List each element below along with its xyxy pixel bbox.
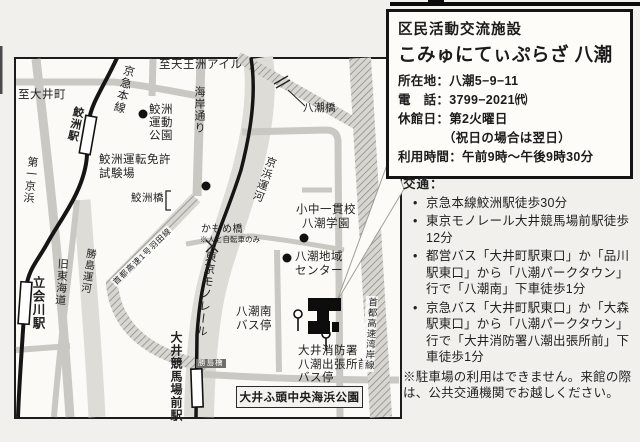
access-list: 京急本線鮫洲駅徒歩30分 東京モノレール大井競馬場前駅徒歩12分 都営バス「大井… <box>403 195 638 366</box>
map-label-kaigan-dori: 海岸通り <box>193 86 204 134</box>
bus-stop-icon-yashio-minami <box>294 310 302 318</box>
map-label-kyu-tokaido: 旧東海道 <box>53 258 67 307</box>
map-label-samezu-bridge: 鮫洲橋 <box>131 192 164 204</box>
map-label-kamome-bridge: かもめ橋 <box>201 224 243 236</box>
access-section: 交通： 京急本線鮫洲駅徒歩30分 東京モノレール大井競馬場前駅徒歩12分 都営バ… <box>403 176 638 402</box>
access-heading: 交通： <box>403 176 638 193</box>
map-label-oi-keibajo-station: 大井競馬場前駅 <box>170 331 182 422</box>
map-label-to-oimachi: 至大井町 <box>18 89 66 102</box>
scanned-map-page: { "info_box": { "category": "区民活動交流施設", … <box>0 0 640 442</box>
scan-edge-left <box>0 46 3 94</box>
facility-closed-day-note-row: （祝日の場合は翌日） <box>398 129 620 148</box>
map-label-to-tennozu: 至天王洲アイル <box>159 59 242 72</box>
map-label-tachiaigawa-station: 立会川駅 <box>31 276 44 330</box>
facility-closed-day-row: 休館日：第2火曜日 <box>398 110 620 129</box>
poi-dot-license-center <box>202 182 211 191</box>
facility-phone-row: 電 話：3799−2021㈹ <box>398 91 620 110</box>
map-label-yashio-bridge: 八潮橋 <box>303 102 336 114</box>
map-label-school: 小中一貫校 八潮学園 <box>296 203 356 231</box>
map-label-yashio-minami-bus-stop: 八潮南 バス停 <box>236 306 272 333</box>
map-label-license-center: 鮫洲運転免許 試験場 <box>99 153 171 181</box>
access-item-toei-bus: 都営バス「大井町駅東口」か「品川駅東口」から「八潮パークタウン」行で「八潮南」下… <box>413 248 638 298</box>
facility-info-box: 区民活動交流施設 こみゅにてぃぷらざ 八潮 所在地：八潮5−9−11 電 話：3… <box>386 9 633 179</box>
map-label-fire-station-bus-stop: 大井消防署 八潮出張所前 バス停 <box>298 345 370 386</box>
oi-keibajo-station-marker <box>191 369 203 407</box>
access-item-keikyu-bus: 京急バス「大井町駅東口」か「大森駅東口」から「八潮パークタウン」行で「大井消防署… <box>413 300 638 366</box>
facility-address-row: 所在地：八潮5−9−11 <box>398 72 620 91</box>
map-label-katsushima-bridge: 勝島橋 <box>196 359 226 368</box>
scan-edge-bar-top <box>390 2 640 6</box>
poi-dot-sports-park <box>139 110 148 119</box>
facility-category: 区民活動交流施設 <box>398 18 620 39</box>
tachiaigawa-station-marker <box>18 282 32 325</box>
map-label-community-center: 八潮地域 センター <box>295 250 343 278</box>
access-parking-note: ※駐車場の利用はできません。来館の際は、公共交通機関でお越しください。 <box>403 369 638 402</box>
map-label-kamome-note: ※人と自転車のみ <box>200 236 260 245</box>
facility-name: こみゅにてぃぷらざ 八潮 <box>398 41 620 67</box>
map-label-sports-park: 鮫洲 運動 公園 <box>149 104 173 143</box>
access-item-monorail: 東京モノレール大井競馬場前駅徒歩12分 <box>413 213 638 246</box>
scan-edge-dash <box>428 0 444 3</box>
facility-hours-row: 利用時間：午前9時〜午後9時30分 <box>398 148 620 167</box>
oi-wharf-park-box: 大井ふ頭中央海浜公園 <box>236 386 363 408</box>
poi-dot-community-center <box>283 254 292 263</box>
map-label-oi-wharf-park: 大井ふ頭中央海浜公園 <box>240 389 360 405</box>
access-item-keikyu: 京急本線鮫洲駅徒歩30分 <box>413 195 638 212</box>
poi-dot-school <box>300 234 309 243</box>
